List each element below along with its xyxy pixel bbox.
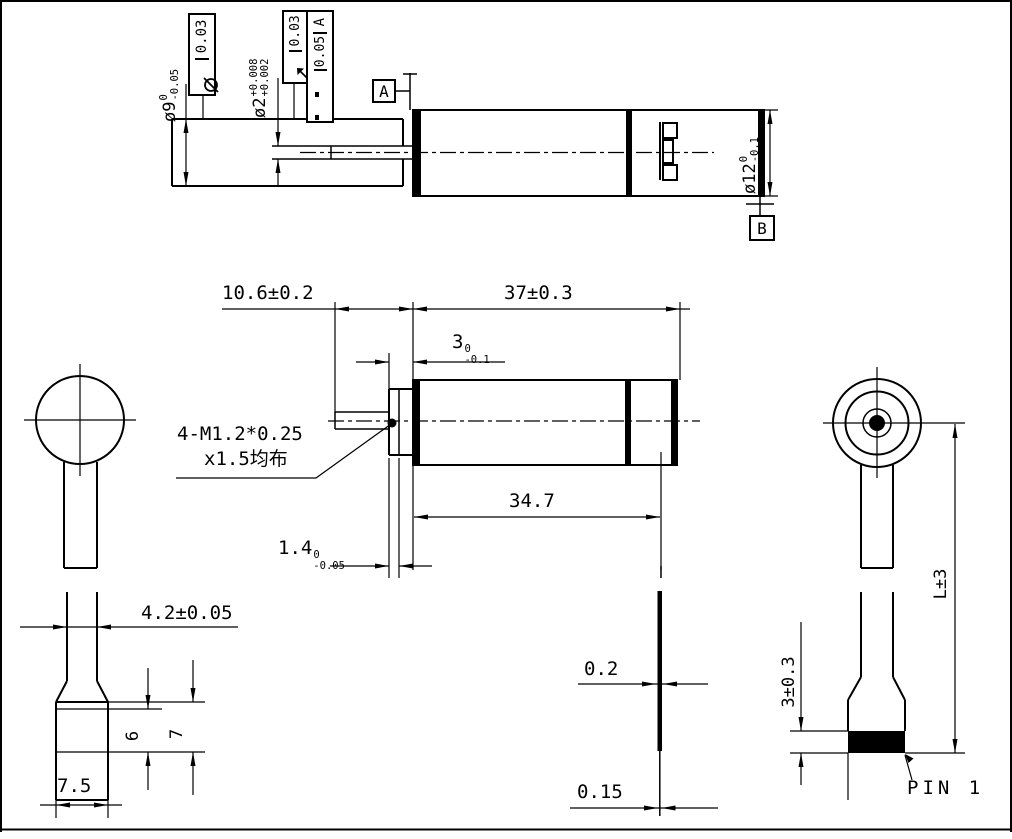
dim-cable-length: L±3 <box>929 552 953 616</box>
datum-b-label: B <box>757 219 767 238</box>
fcf-phi9-value: 0.03 <box>195 15 209 60</box>
right-view-crosshair <box>823 367 965 478</box>
fcf-phi9: 0.03 <box>188 13 216 96</box>
dim-phi2-value: ø2 <box>252 98 269 118</box>
dim-phi9-value: ø9 <box>162 102 179 122</box>
left-view-connector-outline <box>56 592 108 800</box>
dim-body-length: 37±0.3 <box>504 284 573 303</box>
dim-boss-length: 30-0.1 <box>452 333 490 366</box>
left-view-crosshair <box>24 364 136 476</box>
thread-hole-dot <box>388 419 397 428</box>
fcf-phi2-datum: 0.05 A <box>306 10 334 123</box>
thread-note-line1: 4-M1.2*0.25 <box>177 425 303 444</box>
dim-phi2: ø2+0.008+0.002 <box>243 6 277 118</box>
dim-shaft-length: 10.6±0.2 <box>222 284 314 303</box>
drawing-linework <box>0 0 1012 839</box>
fcf-phi2-datum-value: 0.05 <box>314 34 327 71</box>
dim-connector-length: 7 <box>167 722 187 746</box>
dim-can-length: 34.7 <box>509 492 555 511</box>
fcf-phi2-runout: 0.03 <box>282 10 308 84</box>
dim-thickness-fpc: 0.15 <box>577 783 623 802</box>
dim-thickness-connector-area: 0.2 <box>584 660 618 679</box>
front-view-body <box>413 380 677 465</box>
left-view-dims <box>20 627 238 805</box>
top-view-terminal-clip <box>660 122 677 180</box>
datum-a-label: A <box>379 82 389 101</box>
fcf-phi2-runout-value: 0.03 <box>289 12 302 52</box>
front-view-flange-dim-arrows <box>375 564 413 569</box>
dim-phi9: ø90-0.05 <box>155 12 185 122</box>
right-view-cable-stem <box>848 465 905 731</box>
datum-a-leader <box>396 73 417 110</box>
datum-a-box: A <box>372 79 396 103</box>
sheet-border <box>0 0 1012 832</box>
right-view-connector-block <box>848 731 905 753</box>
front-view-boss-dim-arrows <box>375 360 427 365</box>
engineering-drawing-sheet: ø90-0.05 0.03 ø2+0.008+0.002 0.03 0.05 A… <box>0 0 1012 839</box>
dim-flange-thickness: 1.40-0.05 <box>278 539 345 572</box>
dim-phi12-value: ø12 <box>742 163 759 194</box>
dim-connector-width: 7.5 <box>57 777 91 796</box>
thread-note-line2: x1.5均布 <box>204 450 288 469</box>
fcf-phi2-datum-ref: A <box>313 12 327 34</box>
dim-cable-width: 4.2±0.05 <box>141 604 233 623</box>
dim-connector-height: 3±0.3 <box>778 648 800 716</box>
dim-contact-length: 6 <box>123 724 143 748</box>
cable-edge-view <box>658 566 663 816</box>
datum-b-box: B <box>749 215 775 241</box>
front-view-flange-dim <box>330 458 432 578</box>
left-view-cable-stem <box>64 462 97 568</box>
dim-phi12: ø120-0.1 <box>735 112 765 194</box>
datum-b-leader <box>746 196 774 215</box>
pin1-label: PIN 1 <box>907 779 984 798</box>
